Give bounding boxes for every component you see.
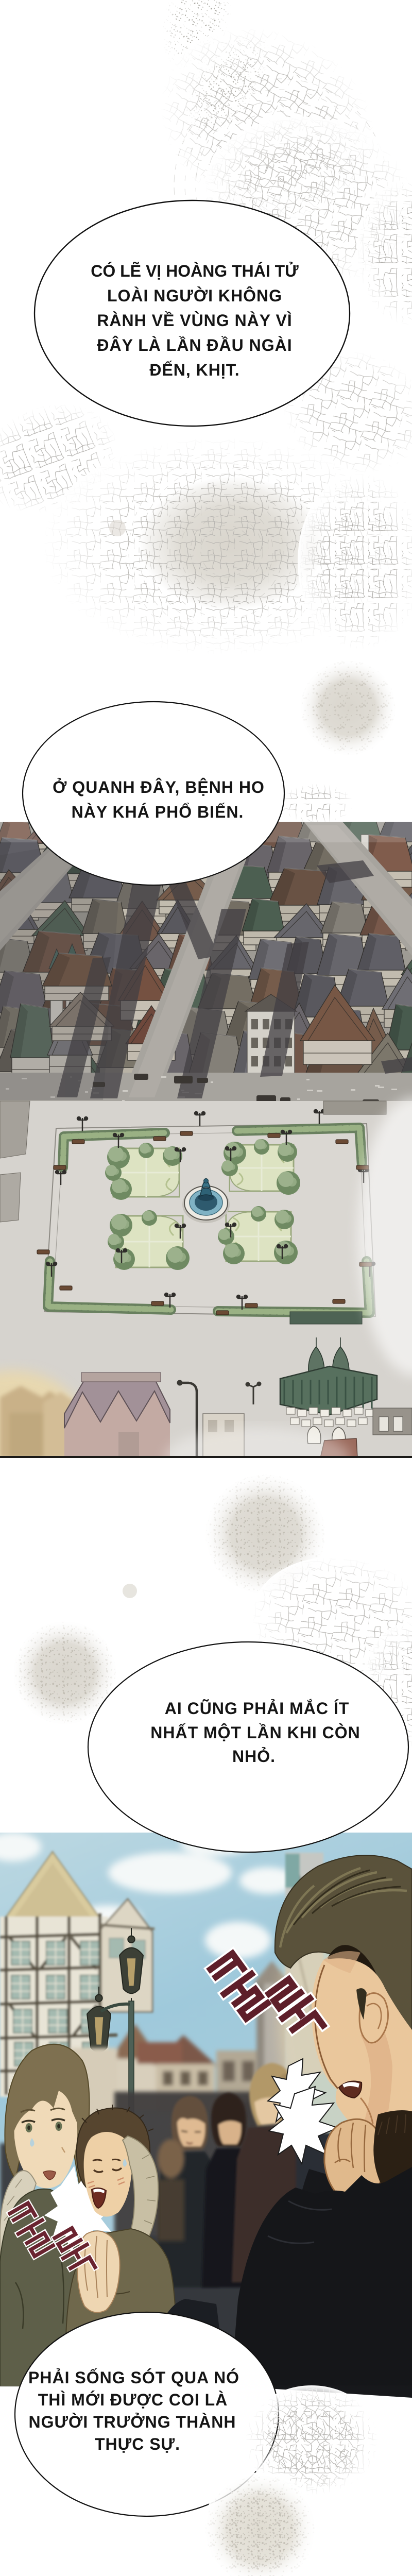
svg-text:THÌ MỚI ĐƯỢC COI LÀ: THÌ MỚI ĐƯỢC COI LÀ <box>38 2391 228 2409</box>
svg-text:PHẢI SỐNG SÓT QUA NÓ: PHẢI SỐNG SÓT QUA NÓ <box>28 2368 239 2387</box>
svg-text:AI CŨNG PHẢI MẮC ÍT: AI CŨNG PHẢI MẮC ÍT <box>165 1699 350 1718</box>
svg-text:NHỎ.: NHỎ. <box>232 1747 276 1766</box>
svg-text:ĐÂY LÀ LẦN ĐẦU NGÀI: ĐÂY LÀ LẦN ĐẦU NGÀI <box>97 336 292 354</box>
svg-text:NHẤT MỘT LẦN KHI CÒN: NHẤT MỘT LẦN KHI CÒN <box>150 1723 360 1742</box>
svg-text:CÓ LẼ VỊ HOÀNG THÁI TỬ: CÓ LẼ VỊ HOÀNG THÁI TỬ <box>91 262 299 280</box>
svg-text:RÀNH VỀ VÙNG NÀY VÌ: RÀNH VỀ VÙNG NÀY VÌ <box>97 311 292 330</box>
svg-text:ĐẾN, KHỊT.: ĐẾN, KHỊT. <box>149 361 239 379</box>
svg-text:NGƯỜI TRƯỞNG THÀNH: NGƯỜI TRƯỞNG THÀNH <box>29 2413 236 2431</box>
svg-text:LOÀI NGƯỜI KHÔNG: LOÀI NGƯỜI KHÔNG <box>107 286 282 305</box>
svg-text:THỰC SỰ.: THỰC SỰ. <box>95 2435 180 2453</box>
svg-text:Ở QUANH ĐÂY, BỆNH HO: Ở QUANH ĐÂY, BỆNH HO <box>53 778 265 796</box>
svg-text:NÀY KHÁ PHỔ BIẾN.: NÀY KHÁ PHỔ BIẾN. <box>72 803 244 821</box>
